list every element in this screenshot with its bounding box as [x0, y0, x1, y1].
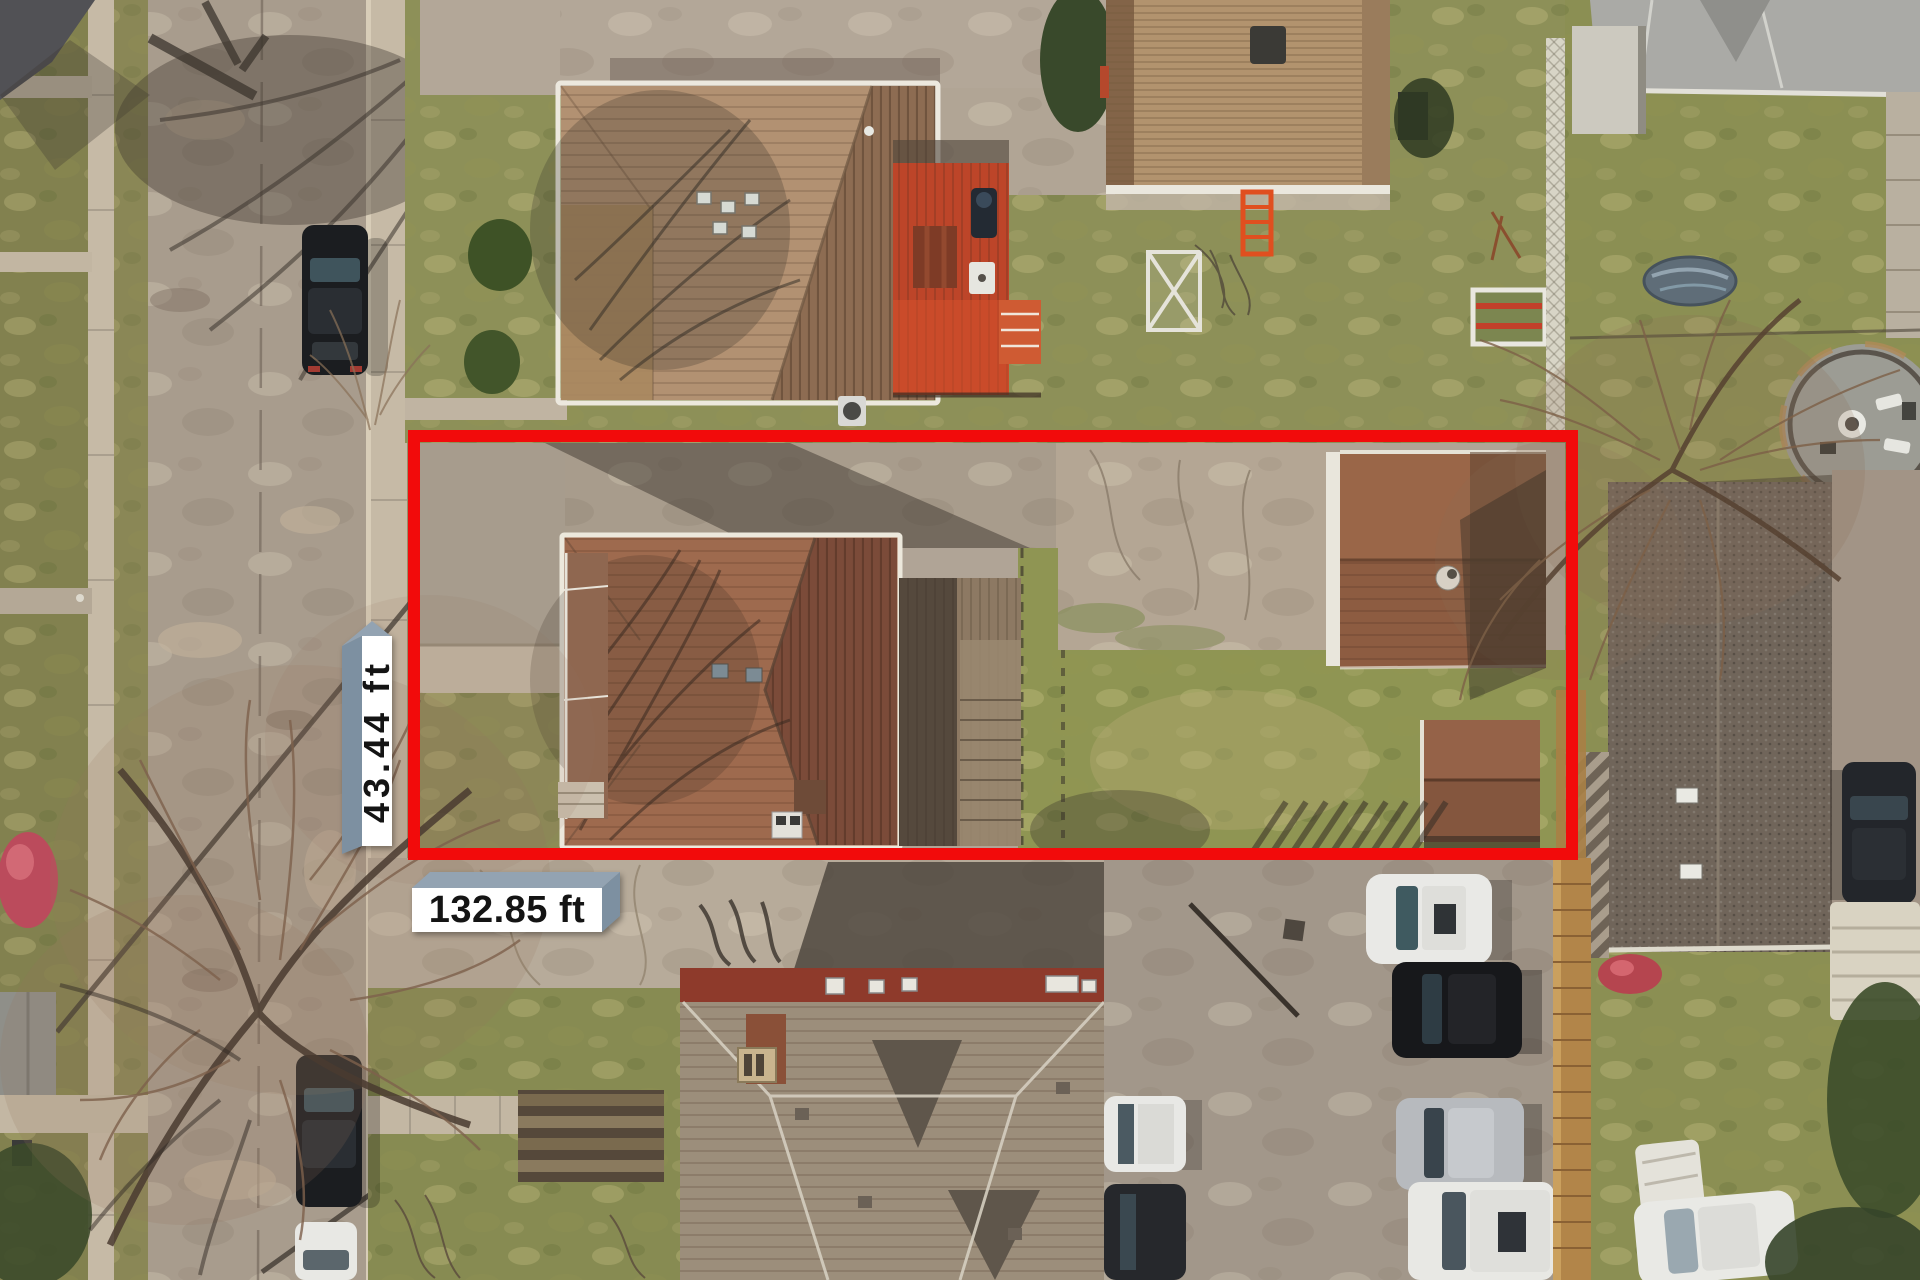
slab-path: [1886, 92, 1920, 338]
black-car: [1392, 962, 1542, 1058]
garden-frame: [1473, 290, 1545, 344]
white-suv-left: [1104, 1096, 1202, 1172]
front-walk: [405, 398, 567, 420]
deck-stairs: [999, 300, 1041, 364]
parked-car-north: [302, 225, 388, 376]
bush: [464, 330, 520, 394]
white-van: [1408, 1182, 1554, 1280]
parked-white-car: [295, 1222, 357, 1280]
white-shed-roof: [1572, 26, 1646, 134]
skylight: [1680, 864, 1702, 879]
property-boundary-outline: [408, 430, 1578, 860]
skylight: [1676, 788, 1698, 803]
roof-vent: [1250, 26, 1286, 64]
picnic-table: [913, 226, 957, 288]
height-label-text: 43.44 ft: [360, 631, 394, 851]
white-x-frame: [1148, 252, 1200, 330]
pink-bush: [0, 832, 58, 928]
screenshot-root: 43.44 ft 132.85 ft: [0, 0, 1920, 1280]
width-label-text: 132.85 ft: [412, 888, 602, 932]
bush: [468, 219, 532, 291]
silver-car: [1396, 1098, 1542, 1190]
pedestrian: [76, 594, 84, 602]
north-house-roof: [530, 83, 938, 426]
width-dimension-label: 132.85 ft: [408, 868, 624, 936]
black-suv-east: [1830, 762, 1916, 904]
parking-lot: [1104, 858, 1556, 1280]
red-bush: [1598, 954, 1662, 994]
height-dimension-label: 43.44 ft: [340, 616, 394, 856]
terraced-steps: [518, 1090, 664, 1182]
kiddie-pool: [1644, 257, 1736, 305]
white-crossover: [1366, 874, 1512, 964]
mansard-band: [680, 968, 1104, 1002]
dark-suv-left: [1104, 1184, 1186, 1280]
